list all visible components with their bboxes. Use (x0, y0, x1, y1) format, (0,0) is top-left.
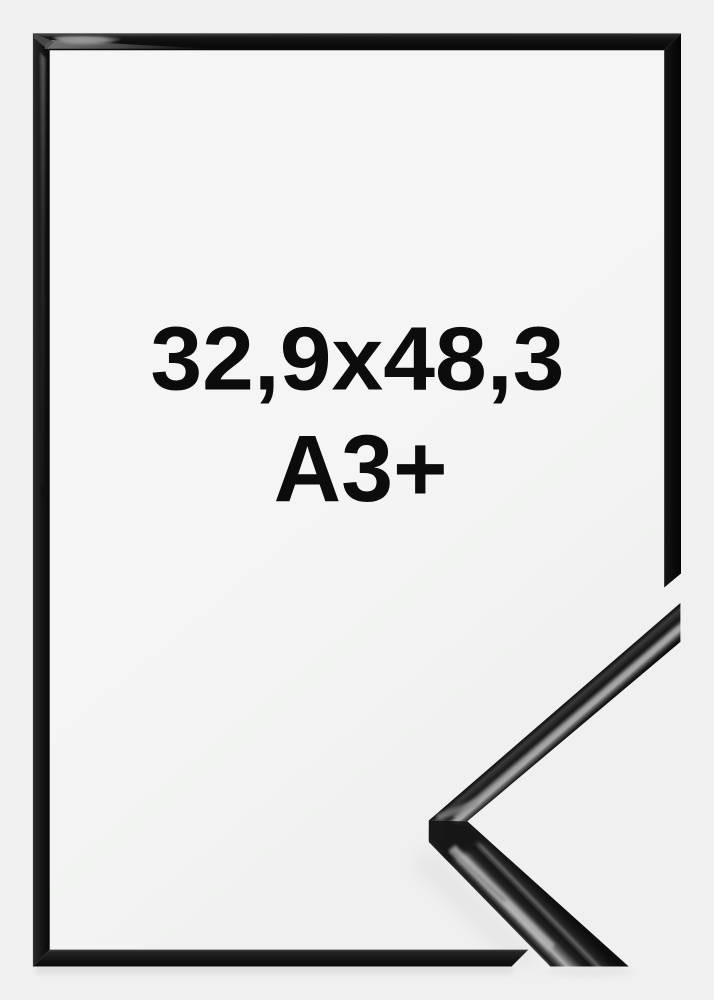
svg-text:A3+: A3+ (274, 416, 448, 522)
svg-text:32,9x48,3: 32,9x48,3 (150, 310, 564, 410)
